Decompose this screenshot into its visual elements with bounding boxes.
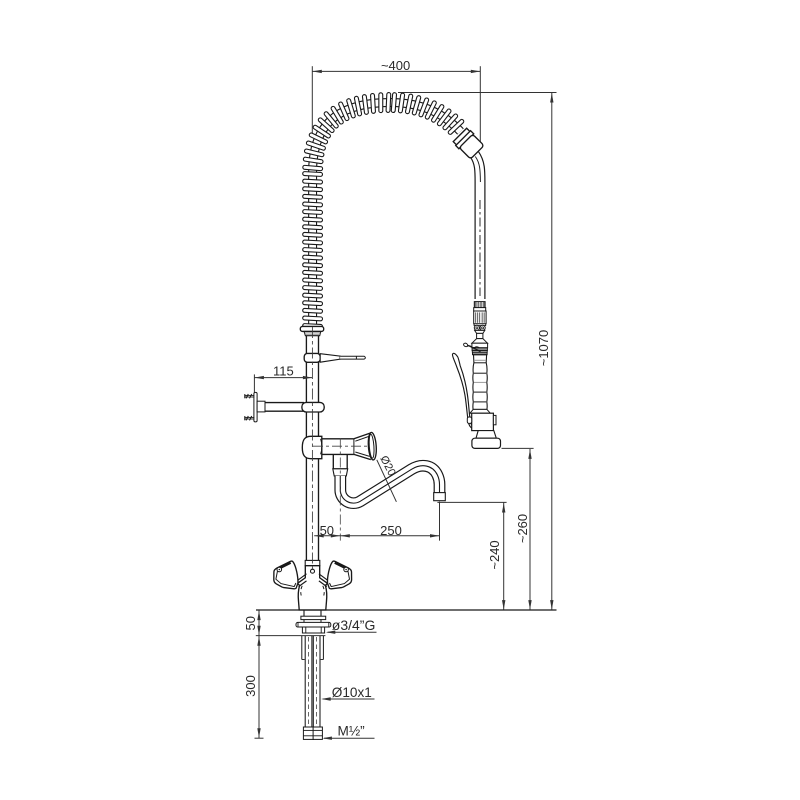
svg-text:115: 115 [273, 364, 294, 379]
svg-text:50: 50 [243, 616, 258, 630]
svg-text:M½”: M½” [338, 724, 366, 739]
svg-text:~1070: ~1070 [536, 330, 551, 367]
svg-text:~400: ~400 [381, 58, 410, 73]
svg-text:~260: ~260 [515, 514, 530, 543]
svg-text:250: 250 [380, 523, 402, 538]
svg-text:ø3/4”G: ø3/4”G [332, 617, 376, 633]
svg-text:~240: ~240 [487, 540, 502, 569]
svg-text:300: 300 [243, 675, 258, 697]
svg-text:50: 50 [320, 523, 334, 538]
svg-text:Ø10x1: Ø10x1 [332, 685, 372, 700]
